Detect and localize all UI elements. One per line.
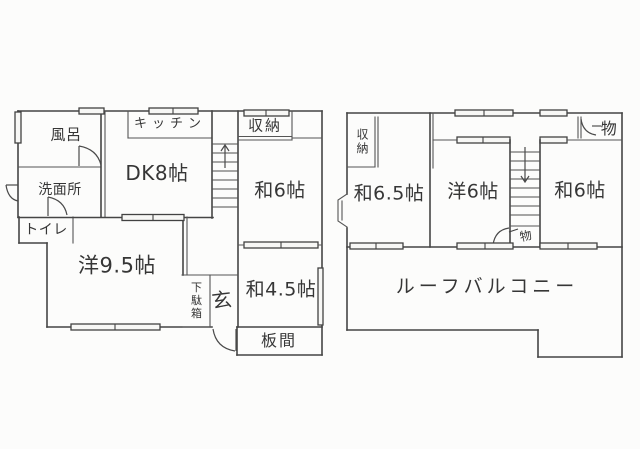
room-label-storage-under-stairs: 物 [519, 229, 534, 243]
room-label-storage-top: 物 [601, 121, 618, 137]
floor2-walls [338, 110, 622, 357]
room-label-entrance: 玄 [211, 289, 234, 311]
room-label-toilet: トイレ [24, 223, 68, 237]
room-label-wood-floor: 板間 [261, 333, 297, 349]
room-label-dk8: DK8帖 [125, 163, 188, 183]
room-label-roof-balcony: ルーフバルコニー [396, 278, 578, 297]
room-label-kitchen: キッチン [134, 118, 206, 131]
room-label-shoe-cabinet: 下駄箱 [191, 282, 202, 321]
room-label-japanese6-2f: 和6帖 [554, 182, 606, 201]
room-label-closet-2f: 収納 [356, 128, 368, 156]
room-label-western95: 洋9.5帖 [78, 256, 156, 277]
floor-plan: 風呂 キッチン 収納 DK8帖 洗面所 トイレ 和6帖 洋9.5帖 下駄箱 玄 … [0, 0, 640, 449]
stairs-1f [212, 144, 238, 207]
room-label-western6: 洋6帖 [447, 183, 499, 202]
stairs-2f [510, 147, 540, 226]
room-label-washroom: 洗面所 [38, 183, 82, 197]
room-label-japanese6-1f: 和6帖 [254, 182, 306, 201]
floor-plan-linework [0, 0, 640, 449]
room-label-japanese45: 和4.5帖 [246, 281, 317, 300]
room-label-storage-1f: 収納 [248, 119, 282, 134]
room-label-japanese65: 和6.5帖 [354, 185, 425, 204]
room-label-bath: 風呂 [50, 128, 81, 143]
